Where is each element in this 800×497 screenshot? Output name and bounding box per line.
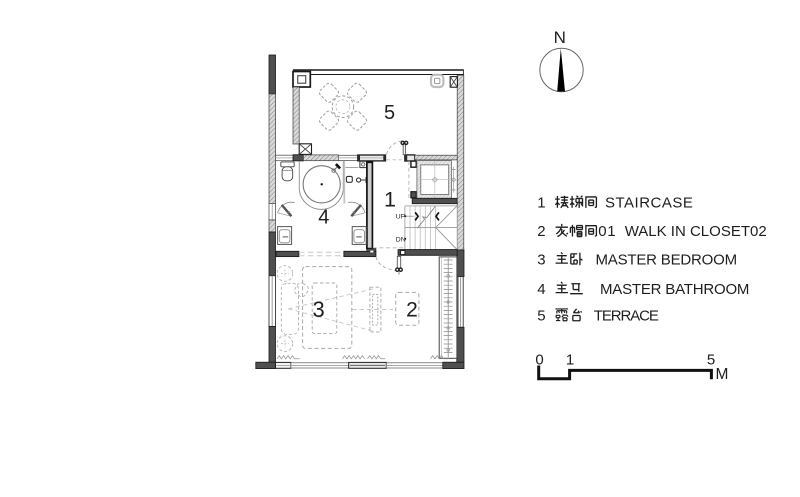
svg-text:1: 1 [566,351,574,368]
svg-text:1: 1 [384,187,396,211]
svg-text:01: 01 [598,223,616,240]
svg-text:4: 4 [318,207,329,229]
svg-text:3: 3 [537,251,545,268]
svg-text:2: 2 [406,299,418,322]
svg-text:WALK IN CLOSET02: WALK IN CLOSET02 [625,223,767,240]
svg-text:TERRACE: TERRACE [594,307,659,324]
svg-text:N: N [554,28,566,47]
svg-text:DN: DN [396,237,406,244]
svg-text:STAIRCASE: STAIRCASE [605,194,693,211]
svg-text:MASTER BATHROOM: MASTER BATHROOM [600,281,749,298]
svg-text:UP: UP [396,214,406,221]
svg-text:2: 2 [537,223,545,240]
svg-text:5: 5 [707,351,715,368]
svg-text:MASTER BEDROOM: MASTER BEDROOM [596,251,737,268]
svg-text:5: 5 [537,307,545,324]
svg-text:3: 3 [312,297,324,322]
svg-text:M: M [716,366,729,383]
svg-text:5: 5 [384,102,395,124]
svg-text:1: 1 [537,194,545,211]
svg-text:4: 4 [537,281,545,298]
